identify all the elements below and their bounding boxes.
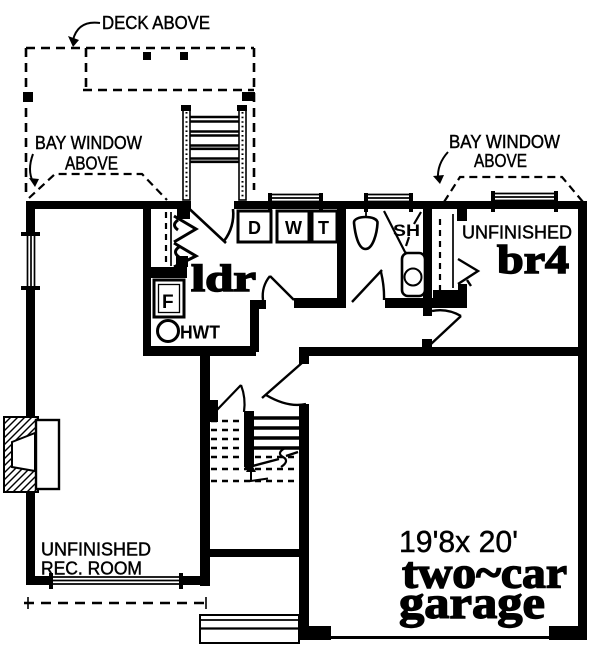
svg-text:DECK ABOVE: DECK ABOVE — [102, 13, 210, 33]
svg-text:BAY WINDOW: BAY WINDOW — [35, 133, 142, 153]
svg-text:ABOVE: ABOVE — [65, 154, 118, 174]
svg-text:ABOVE: ABOVE — [474, 151, 527, 171]
svg-text:garage: garage — [399, 577, 545, 628]
svg-text:BAY WINDOW: BAY WINDOW — [449, 132, 560, 152]
svg-text:UNFINISHED: UNFINISHED — [41, 540, 151, 560]
svg-text:br4: br4 — [497, 237, 569, 282]
svg-text:D: D — [248, 218, 261, 238]
svg-text:ldr: ldr — [191, 258, 256, 300]
svg-text:HWT: HWT — [180, 323, 220, 343]
svg-text:REC. ROOM: REC. ROOM — [41, 559, 142, 579]
svg-text:SH: SH — [393, 221, 420, 240]
svg-text:F: F — [162, 292, 174, 313]
svg-text:W: W — [285, 218, 302, 238]
svg-text:T: T — [318, 218, 329, 238]
